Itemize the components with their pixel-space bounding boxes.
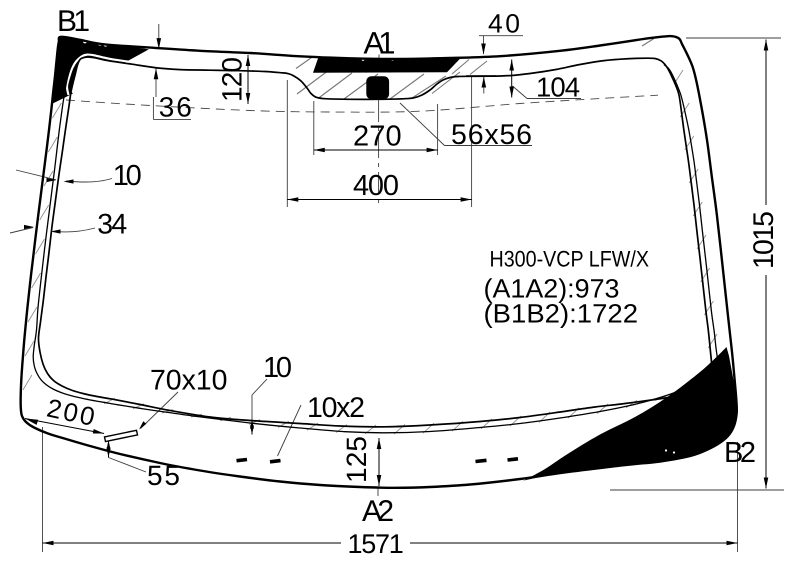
svg-text:10: 10 [113, 160, 142, 192]
svg-text:10: 10 [263, 352, 292, 384]
svg-text:B1: B1 [57, 5, 90, 38]
svg-text:10x2: 10x2 [307, 392, 365, 424]
svg-text:270: 270 [353, 121, 402, 153]
svg-text:104: 104 [536, 72, 580, 103]
svg-text:A1: A1 [364, 26, 396, 61]
svg-text:56x56: 56x56 [451, 119, 532, 151]
svg-text:125: 125 [341, 436, 372, 483]
svg-text:120: 120 [217, 57, 248, 102]
svg-text:A2: A2 [362, 495, 394, 528]
svg-text:H300-VCP LFW/X: H300-VCP LFW/X [490, 247, 650, 272]
svg-text:55: 55 [147, 460, 180, 491]
svg-text:400: 400 [353, 170, 399, 202]
svg-text:34: 34 [97, 209, 127, 241]
svg-text:B2: B2 [724, 437, 756, 469]
svg-text:1571: 1571 [347, 529, 403, 559]
svg-text:70x10: 70x10 [150, 365, 228, 397]
svg-text:(B1B2):1722: (B1B2):1722 [484, 299, 639, 329]
svg-text:1015: 1015 [748, 211, 780, 269]
svg-text:36: 36 [159, 92, 192, 123]
